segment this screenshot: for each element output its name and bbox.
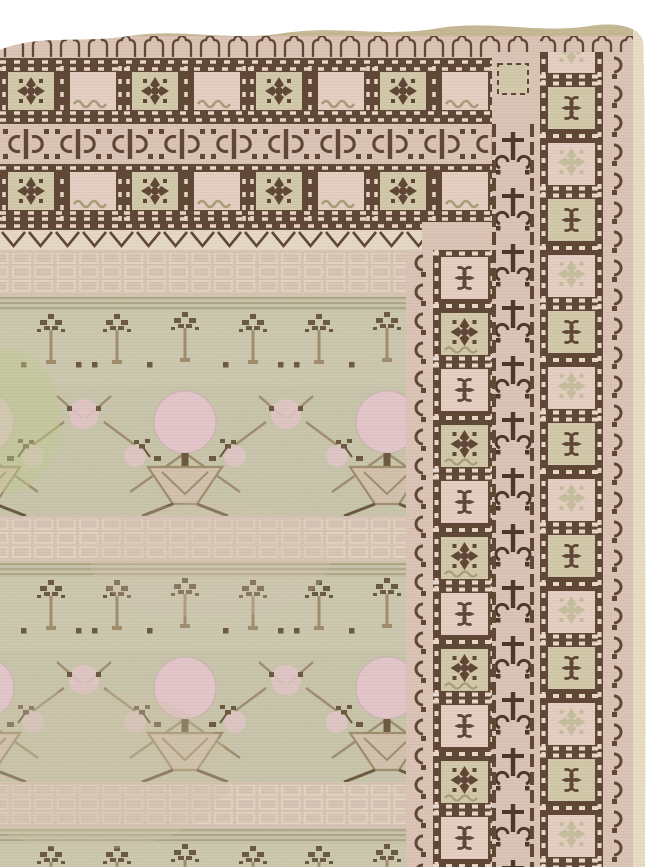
photo-stage: Photograph of an antique pale Khotan-sty… [0, 0, 650, 867]
rug-canvas [0, 16, 650, 867]
photo-grain-overlay [0, 16, 650, 867]
rug-photo: Photograph of an antique pale Khotan-sty… [0, 0, 650, 867]
